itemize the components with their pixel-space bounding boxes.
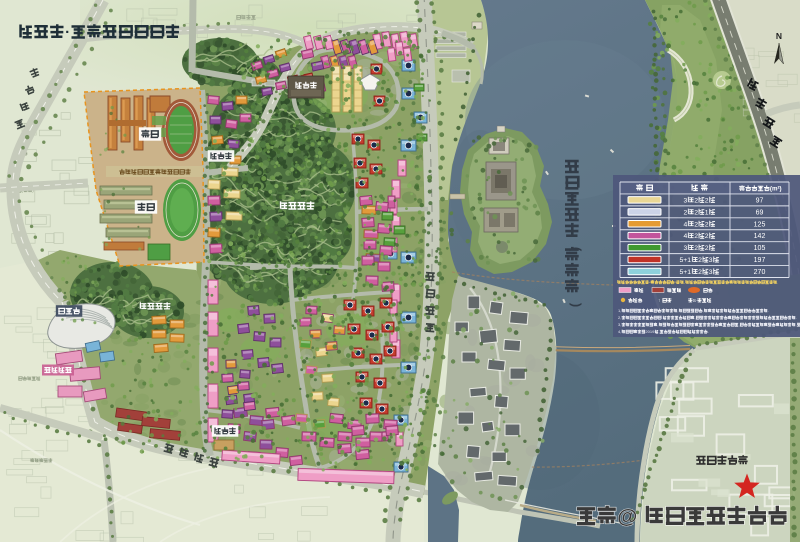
svg-text:69: 69 xyxy=(756,209,764,216)
svg-text:,: , xyxy=(657,322,658,327)
svg-text:.: . xyxy=(796,315,797,320)
svg-text:2: 2 xyxy=(698,257,702,264)
svg-text:2: 2 xyxy=(705,245,709,252)
svg-text:5+1: 5+1 xyxy=(680,257,692,264)
svg-text:125: 125 xyxy=(754,221,766,228)
svg-text:2: 2 xyxy=(684,209,688,216)
svg-text:↑: ↑ xyxy=(658,299,660,304)
svg-text:97: 97 xyxy=(756,197,764,204)
svg-text:.: . xyxy=(777,280,778,285)
svg-text:·: · xyxy=(65,24,71,41)
svg-text:.: . xyxy=(768,308,769,313)
svg-text:,: , xyxy=(684,280,685,285)
svg-text:,: , xyxy=(677,308,678,313)
svg-text:4: 4 xyxy=(684,221,688,228)
svg-text:2: 2 xyxy=(705,197,709,204)
svg-text:,: , xyxy=(695,315,696,320)
svg-text:@: @ xyxy=(617,505,637,528)
svg-text:2: 2 xyxy=(705,233,709,240)
svg-text:4,: 4, xyxy=(618,329,621,334)
svg-text:(m²): (m²) xyxy=(770,186,782,193)
svg-text:3: 3 xyxy=(684,245,688,252)
svg-text:2: 2 xyxy=(694,245,698,252)
svg-text:N: N xyxy=(776,31,782,41)
svg-text:2: 2 xyxy=(705,221,709,228)
svg-text:3,: 3, xyxy=(618,322,621,327)
svg-text:105: 105 xyxy=(754,245,766,252)
svg-text:.: . xyxy=(708,329,709,334)
svg-text:1,: 1, xyxy=(618,308,621,313)
svg-text:3: 3 xyxy=(709,257,713,264)
svg-text:2: 2 xyxy=(694,233,698,240)
svg-text:,: , xyxy=(659,329,660,334)
svg-text:2: 2 xyxy=(694,221,698,228)
svg-text:1: 1 xyxy=(705,209,709,216)
svg-text:142: 142 xyxy=(754,233,766,240)
svg-text:5+1: 5+1 xyxy=(680,269,692,276)
svg-text:3: 3 xyxy=(684,197,688,204)
svg-text:,: , xyxy=(796,322,797,327)
svg-text:197: 197 xyxy=(754,257,766,264)
svg-text:2: 2 xyxy=(694,197,698,204)
svg-text:,: , xyxy=(739,322,740,327)
svg-text:2: 2 xyxy=(698,269,702,276)
svg-text:2019: 2019 xyxy=(645,329,655,334)
svg-text:S·: S· xyxy=(693,298,698,304)
svg-text:2: 2 xyxy=(694,209,698,216)
svg-text:2,: 2, xyxy=(618,315,621,320)
svg-text:,: , xyxy=(661,315,662,320)
svg-text:4: 4 xyxy=(684,233,688,240)
svg-text:3: 3 xyxy=(709,269,713,276)
svg-text:): ) xyxy=(569,303,584,307)
svg-text:,: , xyxy=(703,308,704,313)
svg-text:270: 270 xyxy=(754,269,766,276)
